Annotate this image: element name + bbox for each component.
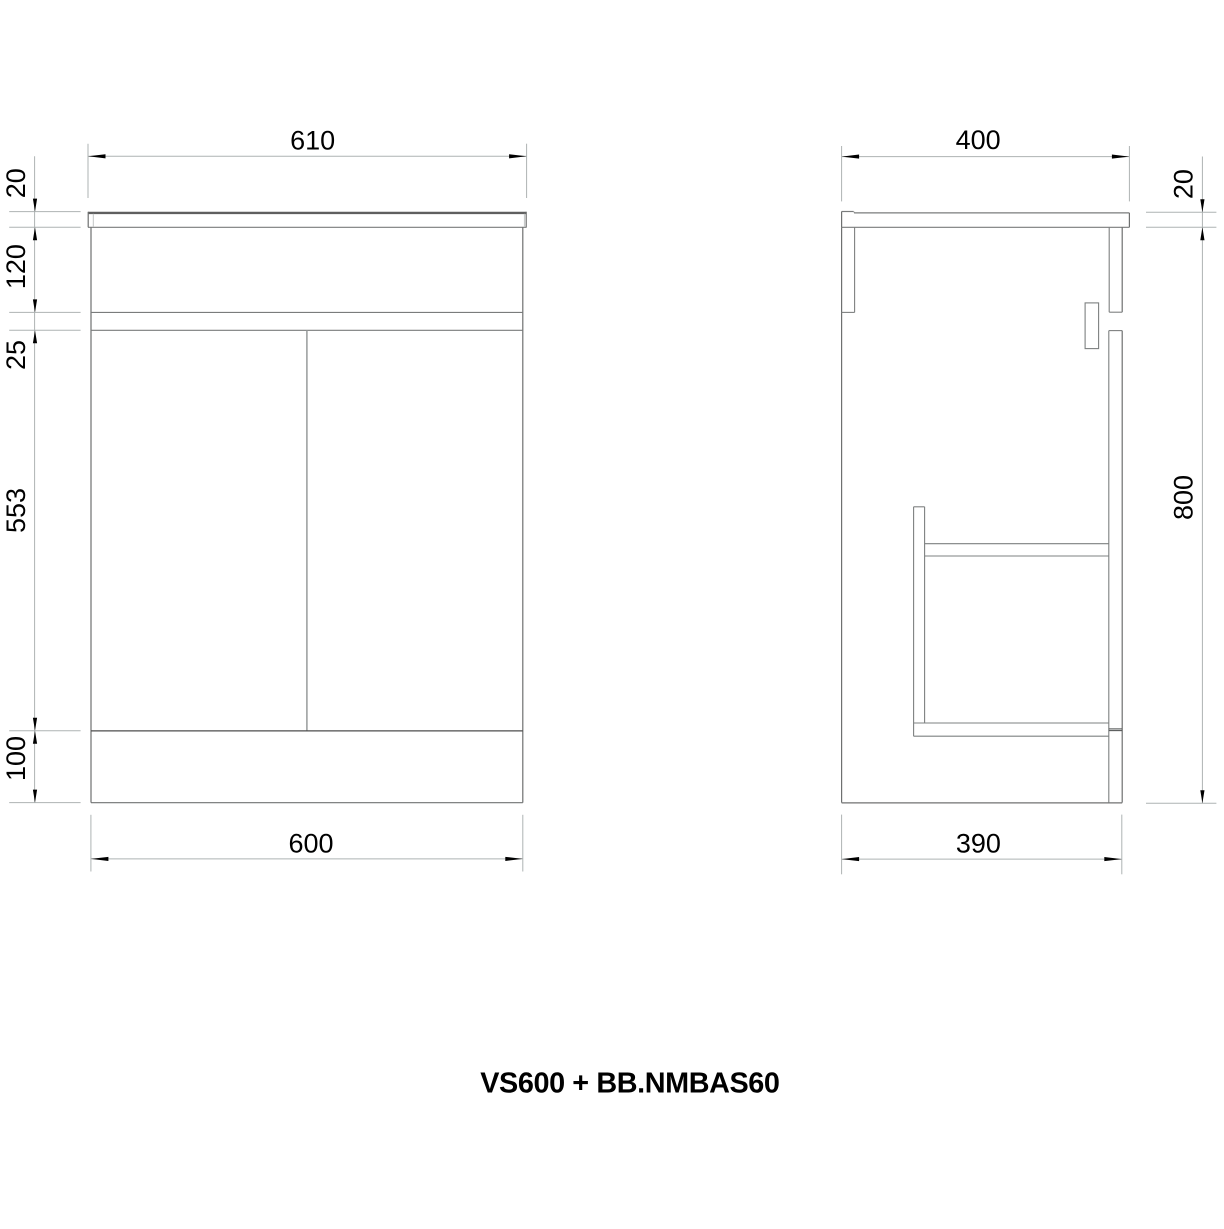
svg-text:100: 100	[1, 736, 31, 781]
svg-text:120: 120	[1, 244, 31, 289]
svg-text:20: 20	[1, 168, 31, 198]
svg-text:25: 25	[1, 340, 31, 370]
svg-text:553: 553	[1, 488, 31, 533]
svg-text:800: 800	[1168, 475, 1198, 520]
svg-text:390: 390	[956, 829, 1001, 859]
svg-text:600: 600	[288, 828, 333, 858]
svg-text:VS600 + BB.NMBAS60: VS600 + BB.NMBAS60	[480, 1068, 779, 1100]
svg-text:400: 400	[956, 125, 1001, 155]
svg-text:20: 20	[1168, 169, 1198, 199]
svg-text:610: 610	[290, 125, 335, 155]
